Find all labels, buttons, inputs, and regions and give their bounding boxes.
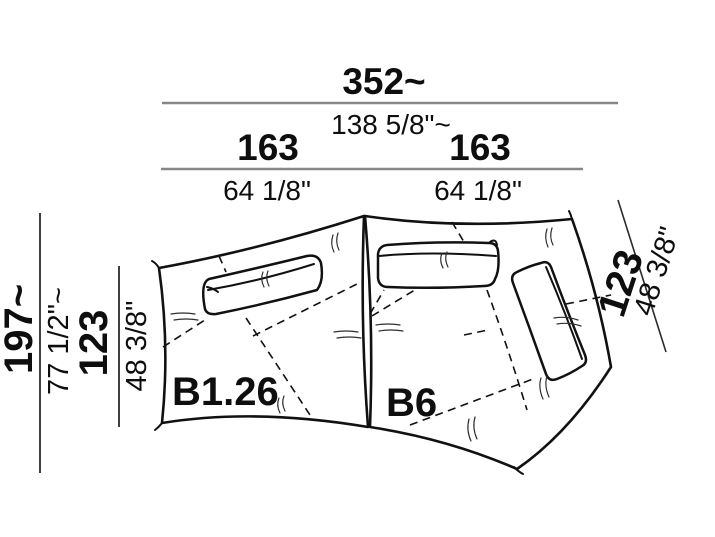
corner-flick (152, 261, 159, 268)
sofa-dimension-diagram: 352~ 138 5/8"~ 163 163 64 1/8" 64 1/8" 1… (0, 0, 715, 537)
left-width-inch: 64 1/8" (223, 175, 311, 206)
left-depth-inch: 48 3/8" (121, 301, 153, 392)
corner-flick (155, 423, 162, 430)
right-back-cushion (378, 242, 499, 287)
left-module-label: B1.26 (172, 370, 279, 414)
left-depth-cm: 123 (72, 310, 116, 377)
right-module-label: B6 (386, 381, 437, 425)
right-width-cm: 163 (449, 127, 511, 168)
overall-width-cm: 352~ (342, 61, 425, 102)
overall-depth-cm: 197~ (0, 284, 41, 374)
left-width-cm: 163 (237, 127, 299, 168)
overall-width-inch: 138 5/8"~ (331, 109, 451, 140)
right-width-inch: 64 1/8" (434, 175, 522, 206)
corner-flick (569, 211, 572, 219)
diagram-canvas: 352~ 138 5/8"~ 163 163 64 1/8" 64 1/8" 1… (0, 0, 715, 537)
overall-depth-inch: 77 1/2"~ (43, 287, 75, 395)
